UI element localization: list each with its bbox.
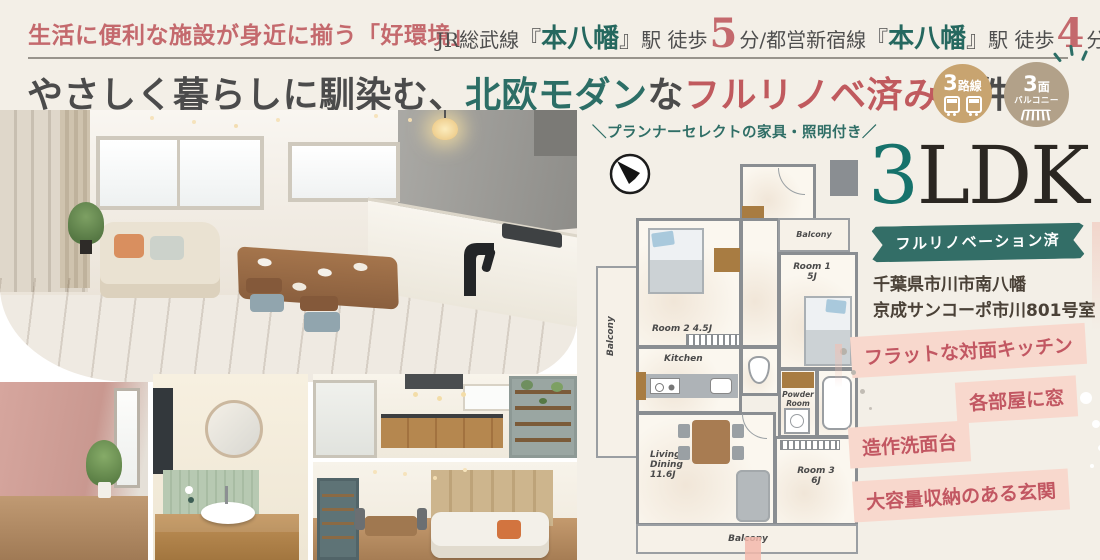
photo-pink-wall-room xyxy=(0,382,148,560)
room3-size: 6J xyxy=(788,476,844,486)
dark-panel xyxy=(153,388,173,474)
pendant-lights xyxy=(413,392,418,397)
photo-washbasin xyxy=(153,374,308,560)
window xyxy=(96,136,264,210)
feature-tag-kitchen: フラットな対面キッチン xyxy=(850,323,1087,378)
badge-2-text: 3面 xyxy=(1004,72,1069,96)
badge-2-number: 3 xyxy=(1023,72,1038,96)
minute-unit-1: 分 xyxy=(739,28,759,52)
ceiling-lights xyxy=(373,470,377,474)
room1-size: 5J xyxy=(784,272,840,282)
balcony-left-label: Balcony xyxy=(606,316,616,356)
badge-1-number: 3 xyxy=(943,71,958,95)
rail-line-1: JR総武線 xyxy=(436,28,519,52)
exterior-column xyxy=(830,160,858,196)
real-estate-flyer: 生活に便利な施設が身近に揃う「好環境」 JR総武線『本八幡』駅 徒歩5分/都営新… xyxy=(0,0,1100,560)
badge-2-unit: 面 xyxy=(1038,80,1050,94)
pink-streak-decoration xyxy=(835,344,842,388)
shelf-niche xyxy=(317,478,359,560)
room1-name: Room 1 xyxy=(784,262,840,272)
walk-minutes-1: 5 xyxy=(709,10,737,57)
chair-plan xyxy=(678,446,690,460)
sink xyxy=(710,378,732,394)
station-name-2: 本八幡 xyxy=(888,24,966,54)
blanket xyxy=(650,260,702,292)
station-name-1: 本八幡 xyxy=(541,24,619,54)
balcony-icon xyxy=(1020,110,1053,121)
living-label-line3: 11.6J xyxy=(650,470,683,480)
address-line-1: 千葉県市川市南八幡 xyxy=(873,272,1096,298)
train-icon xyxy=(966,96,982,113)
address-line-2: 京成サンコーポ市川801号室 xyxy=(873,298,1096,324)
kitchen-label: Kitchen xyxy=(664,354,703,364)
hall-storage xyxy=(714,248,740,272)
photo-kitchen xyxy=(313,374,577,458)
photo-main-living-dining-kitchen xyxy=(0,110,577,382)
white-dots-decoration xyxy=(1080,392,1092,404)
living-label-line2: Dining xyxy=(650,460,683,470)
potted-plant xyxy=(68,202,104,244)
room2-label: Room 2 4.5J xyxy=(652,324,712,334)
header-divider-line xyxy=(28,57,1068,59)
property-address: 千葉県市川市南八幡 京成サンコーポ市川801号室 xyxy=(873,272,1096,324)
renovation-ribbon: フルリノベーション済 xyxy=(872,221,1085,264)
chair-seat xyxy=(304,312,340,332)
badge-3-rail-lines: 3路線 xyxy=(933,64,992,123)
white-dots-decoration xyxy=(28,368,37,377)
ldk-text: LDK xyxy=(917,129,1088,222)
bracket: 『 xyxy=(519,28,541,53)
layout-type-3ldk: 3LDK xyxy=(868,136,1088,216)
ldk-number: 3 xyxy=(868,129,917,222)
chair-plan xyxy=(678,424,690,438)
window xyxy=(288,142,400,202)
walk-label-2: 駅 徒歩 xyxy=(988,28,1054,52)
range-hood xyxy=(405,374,463,389)
faucet xyxy=(225,486,228,504)
white-sofa xyxy=(431,512,549,558)
blanket xyxy=(806,330,850,364)
wood-floor xyxy=(0,496,148,560)
train-icons xyxy=(933,96,992,121)
vanity xyxy=(782,372,814,388)
photo-living-sofa xyxy=(313,462,577,560)
flower-vase xyxy=(185,486,193,494)
kitchen-storage xyxy=(636,372,646,400)
feature-tag-windows: 各部屋に窓 xyxy=(955,375,1078,423)
chair xyxy=(246,278,282,293)
chair-plan xyxy=(732,424,744,438)
sofa-plan xyxy=(736,470,770,522)
bracket: 』 xyxy=(966,28,988,53)
closet-room2 xyxy=(686,334,740,346)
powder-label-line2: Room xyxy=(779,399,817,408)
curtain xyxy=(60,110,90,288)
floor-plan: Balcony Room 2 4.5J Balcony Room 1 5J Ki… xyxy=(590,128,862,560)
title-seg-pink: フルリノベ済み xyxy=(684,75,940,116)
balcony-top-label: Balcony xyxy=(786,230,842,239)
badge-3-side-balcony: 3面 バルコニー xyxy=(1004,62,1069,127)
dining-table xyxy=(365,516,417,536)
rail-line-2: 都営新宿線 xyxy=(766,28,866,52)
title-seg-2: な xyxy=(648,75,685,116)
hallway xyxy=(740,218,780,348)
room3-label: Room 3 6J xyxy=(788,466,844,486)
vessel-sink xyxy=(201,502,255,524)
sofa xyxy=(100,222,220,298)
feature-tag-washstand: 造作洗面台 xyxy=(848,420,971,468)
chair-seat xyxy=(250,294,284,312)
bracket: 『 xyxy=(866,28,888,53)
room1-label: Room 1 5J xyxy=(784,262,840,282)
pink-streak-decoration xyxy=(745,537,761,560)
pendant-lamp xyxy=(432,118,458,140)
stove xyxy=(650,378,680,394)
chair-plan xyxy=(732,446,744,460)
room3-name: Room 3 xyxy=(788,466,844,476)
powder-label-line1: Powder xyxy=(779,390,817,399)
catchphrase: 生活に便利な施設が身近に揃う「好環境」 xyxy=(28,16,475,50)
glass-door xyxy=(313,380,377,458)
black-faucet xyxy=(448,226,500,296)
washing-machine xyxy=(784,408,810,434)
round-mirror xyxy=(205,400,263,458)
ceiling-lights xyxy=(150,116,154,120)
badge-1-label: 路線 xyxy=(958,79,982,93)
badge-1-text: 3路線 xyxy=(933,71,992,95)
train-icon xyxy=(944,96,960,113)
potted-plant xyxy=(86,440,122,486)
bracket: 』 xyxy=(619,28,641,53)
wood-cabinets xyxy=(381,414,503,448)
closet-room3 xyxy=(780,440,840,450)
powder-room-label: Powder Room xyxy=(779,390,817,408)
badge-2-label: バルコニー xyxy=(1004,94,1069,106)
range-hood xyxy=(534,110,577,156)
feature-tag-entrance-storage: 大容量収納のある玄関 xyxy=(852,468,1070,522)
station-access-line: JR総武線『本八幡』駅 徒歩5分/都営新宿線『本八幡』駅 徒歩4分 xyxy=(436,14,1100,55)
walk-label-1: 駅 徒歩 xyxy=(641,28,707,52)
compass-north-arrow-icon xyxy=(608,152,652,196)
open-shelving xyxy=(509,376,577,458)
dining-table-plan xyxy=(692,420,730,464)
minute-unit-2: 分 xyxy=(1086,28,1100,52)
balcony-left xyxy=(596,266,638,458)
pillow xyxy=(825,299,846,314)
chair xyxy=(300,296,338,311)
pink-streak-decoration xyxy=(1092,222,1100,330)
